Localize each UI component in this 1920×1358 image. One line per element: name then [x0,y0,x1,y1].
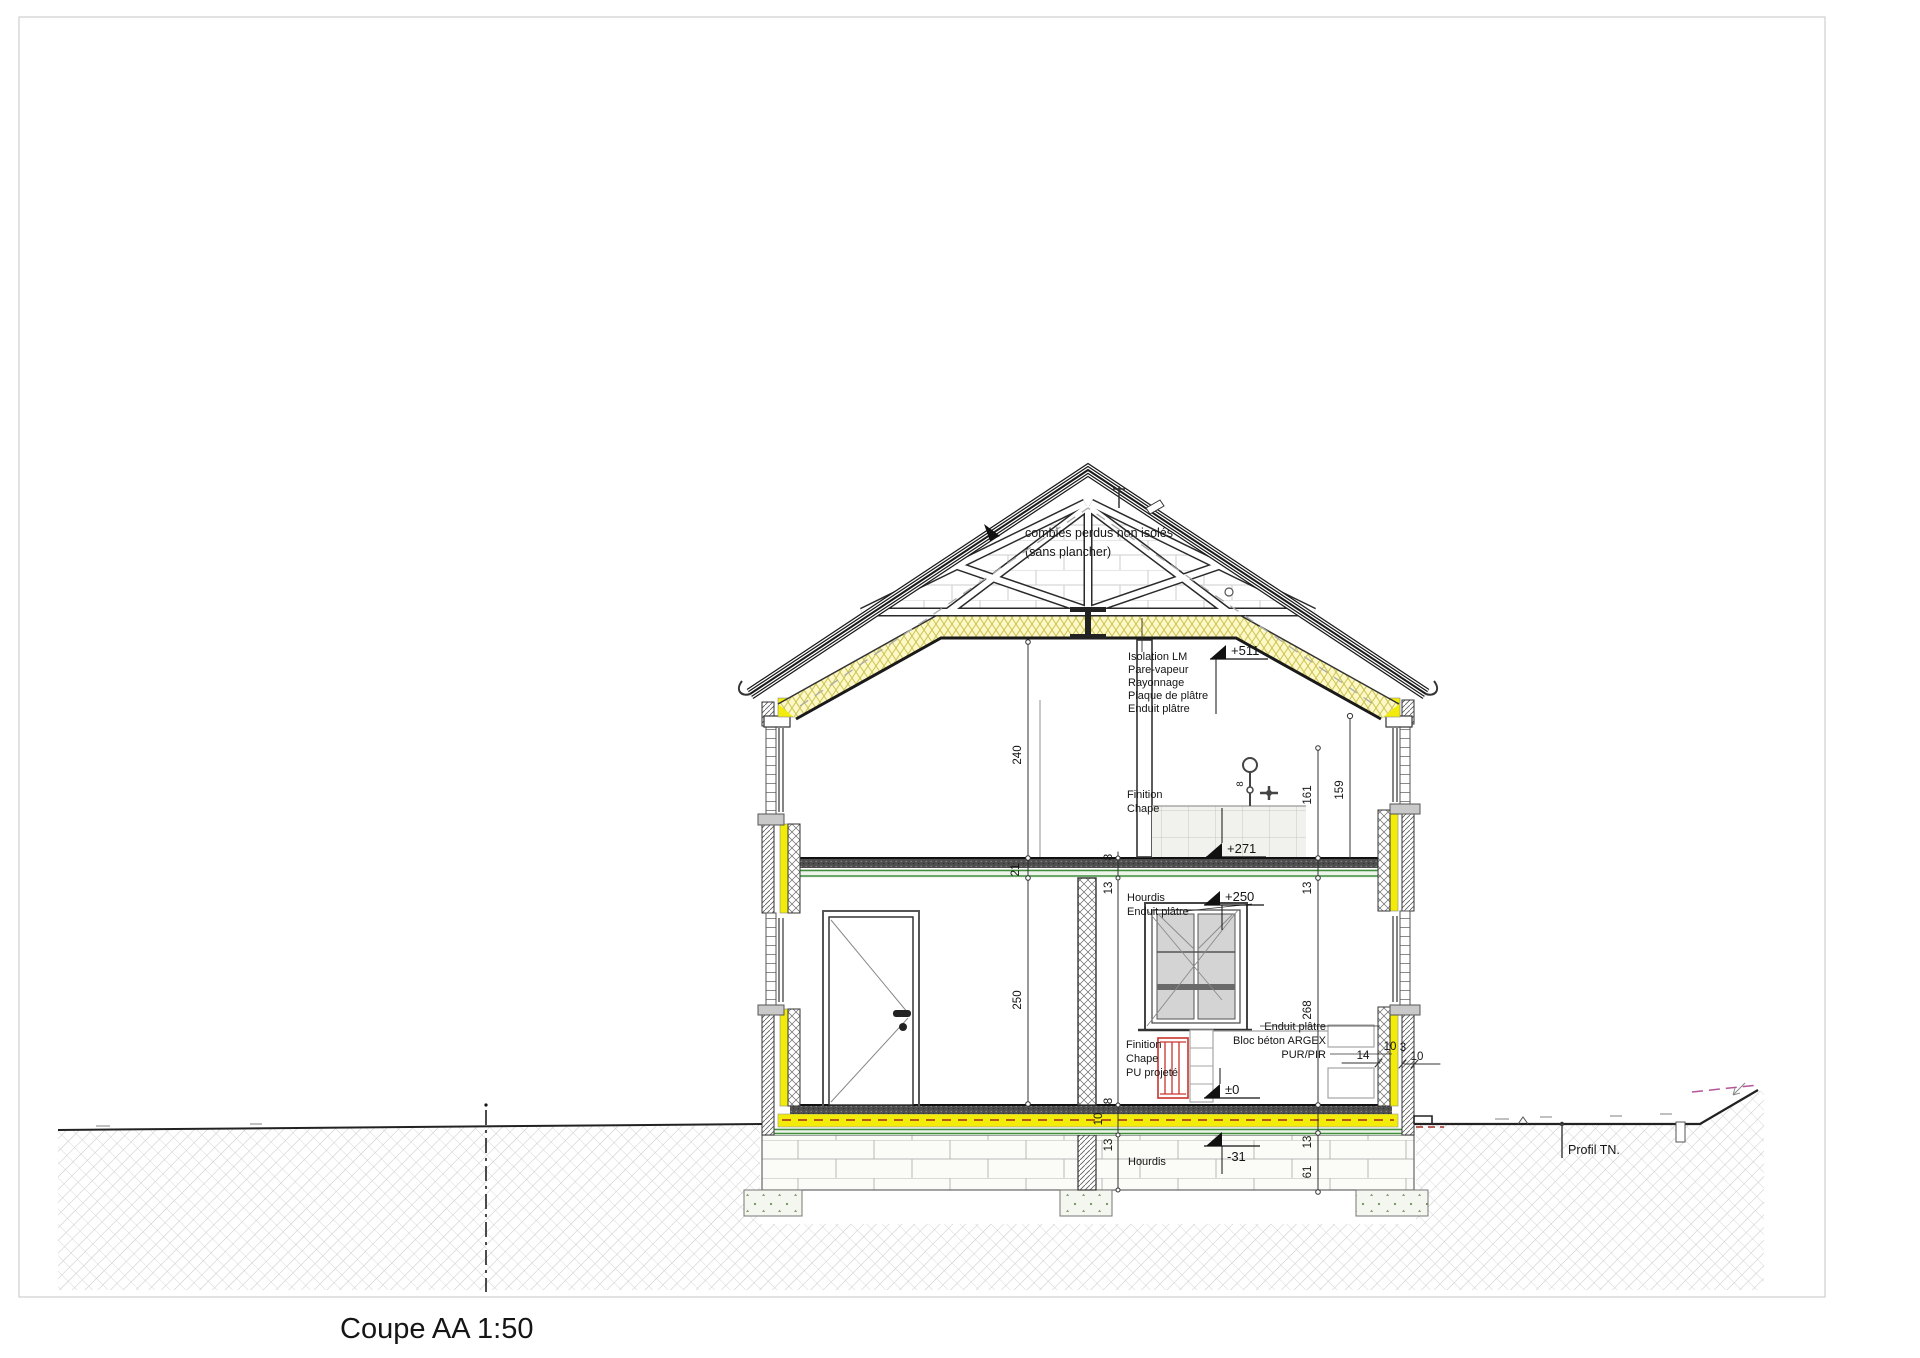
left-wall-block [788,824,800,913]
left-ff-window-glass [779,728,783,812]
axis-dot [484,1103,487,1106]
dim-w14: 14 [1357,1050,1370,1062]
door-handle-icon [893,1010,911,1017]
right-gf-window-glass [1393,916,1397,1002]
ground-floor-slab [766,1105,1406,1135]
foundation [744,1135,1428,1216]
drawing-title: Coupe AA 1:50 [340,1313,534,1345]
mixer-tap-icon [1260,786,1278,800]
dim-161: 161 [1302,785,1314,804]
gf-partition [1078,878,1096,1105]
ff-slab-dark [800,858,1378,868]
left-window-head [764,716,790,727]
left-wall-insulation [780,824,788,913]
level-gf-finished-text: ±0 [1225,1082,1239,1097]
ground-line-right [1414,1090,1758,1124]
door-lock-icon [899,1023,907,1031]
dim-w3: 3 [1400,1042,1406,1054]
dim-tile8: 8 [1235,781,1246,786]
roof-pipe [1225,588,1233,596]
boundary-post [1676,1122,1685,1142]
attic-note-2: (sans plancher) [1025,545,1111,559]
gf-finish-3: PU projeté [1126,1067,1178,1079]
foundation-slab-label: Hourdis [1128,1156,1166,1168]
ff-finish-2: Chape [1127,803,1159,815]
wall-layer-2: Bloc béton ARGEX [1233,1035,1327,1047]
dim-g13: 13 [1103,1139,1115,1152]
left-gf-window-glass [779,918,783,1002]
exterior-step [1414,1116,1432,1124]
dim-ff-height: 240 [1012,745,1024,764]
foundation-pier [1078,1135,1096,1190]
boundary-line-magenta [1692,1085,1758,1092]
dim-268: 268 [1302,1000,1314,1019]
ff-finish-1: Finition [1127,789,1162,801]
right-window-head [1386,716,1412,727]
dim-w10a: 10 [1384,1041,1397,1053]
dim-slab21: 21 [1010,864,1022,877]
level-ceiling-text: +511 [1231,643,1259,658]
dim-g8: 8 [1103,1098,1115,1104]
gutter-left [739,681,750,695]
left-mid-sill [758,814,784,825]
wall-layer-3: PUR/PIR [1281,1049,1326,1061]
first-floor-slab [800,858,1378,878]
boundary-arrow [1733,1083,1745,1095]
right-mid-sill [1390,804,1420,814]
ff-slab-1: Hourdis [1127,892,1165,904]
footing-center [1060,1190,1112,1216]
roof-layer-2: Pare-vapeur [1128,664,1189,676]
roof-layer-1: Isolation LM [1128,651,1187,663]
shower-valve-icon [1247,787,1253,793]
footing-left [744,1190,802,1216]
roof-layer-3: Rayonnage [1128,677,1184,689]
level-gf-structural-text: -31 [1227,1149,1246,1164]
kitchen-window [1138,903,1252,1030]
terrain-label: Profil TN. [1568,1143,1620,1157]
dim-g10: 10 [1093,1113,1105,1126]
roof-layer-5: Enduit plâtre [1128,703,1190,715]
left-wall [758,698,800,1135]
right-ff-window [1400,724,1410,806]
footing-right [1356,1190,1428,1216]
gutter-right [1426,681,1437,695]
right-wall-block [1378,810,1390,911]
left-gf-sill [758,1005,784,1015]
gf-finish-2: Chape [1126,1053,1158,1065]
right-ff-window-glass [1393,728,1397,802]
level-ceiling: +511 [1210,643,1268,714]
level-ff-structural-text: +250 [1225,889,1254,904]
drawing-sheet: Profil TN. [0,0,1920,1358]
dim-f13: 13 [1302,1136,1314,1149]
gf-slab-screed-dark [790,1105,1392,1114]
dim-159: 159 [1334,780,1346,799]
dim-plaster13: 13 [1103,882,1115,895]
attic-note-1: combles perdus non isolés [1025,526,1173,540]
right-wall-insulation [1390,810,1398,911]
dim-f13-upper: 13 [1302,882,1314,895]
wall-layer-1: Enduit plâtre [1264,1021,1326,1033]
right-gf-sill [1390,1005,1420,1015]
roof-layer-4: Plaque de plâtre [1128,690,1208,702]
left-gf-window [766,913,776,1007]
right-gf-window [1400,911,1410,1007]
shower-head-icon [1243,758,1257,772]
level-ff-finished-text: +271 [1227,841,1256,856]
dim-chape8: 8 [1103,854,1115,860]
dim-gf-height: 250 [1012,990,1024,1009]
interior-door [823,911,919,1107]
section-drawing: Profil TN. [0,0,1920,1358]
ff-slab-2: Enduit plâtre [1127,906,1189,918]
dim-w10b: 10 [1411,1051,1424,1063]
dim-f61: 61 [1302,1166,1314,1179]
gf-finish-1: Finition [1126,1039,1161,1051]
left-ff-window [766,726,776,816]
right-wall [1378,698,1444,1135]
